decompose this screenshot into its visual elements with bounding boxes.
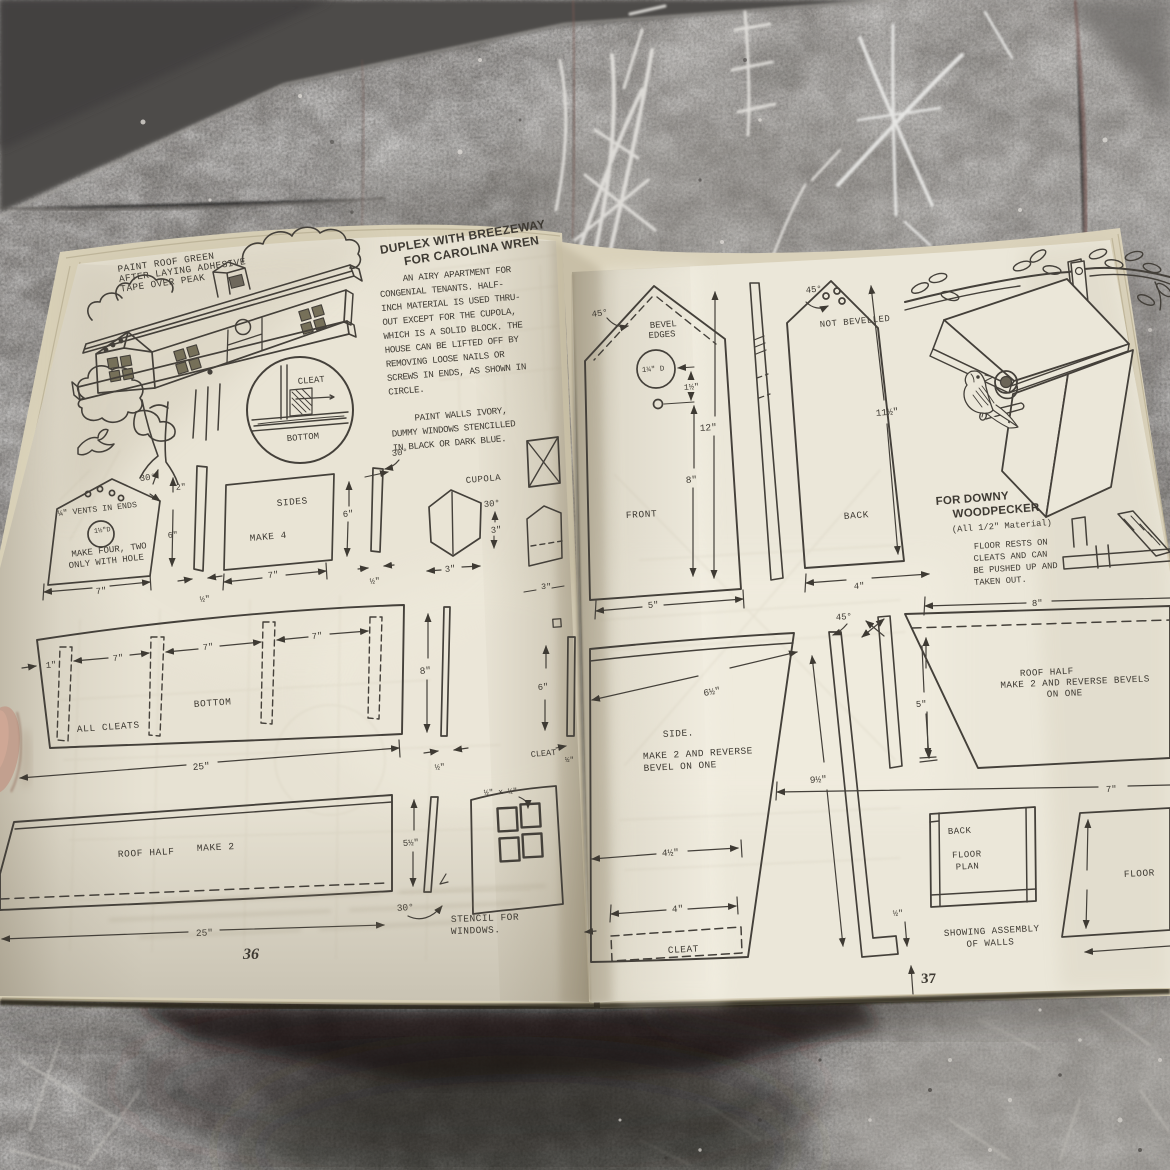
svg-text:WINDOWS.: WINDOWS.	[451, 924, 501, 937]
svg-text:½": ½"	[199, 594, 210, 605]
svg-text:EDGES: EDGES	[648, 329, 676, 341]
svg-text:6": 6"	[537, 682, 548, 693]
svg-text:5": 5"	[916, 699, 927, 710]
svg-text:12": 12"	[699, 422, 717, 434]
svg-text:6": 6"	[342, 509, 354, 520]
svg-text:5": 5"	[648, 600, 659, 611]
svg-text:4": 4"	[854, 581, 865, 592]
svg-text:5½": 5½"	[403, 838, 420, 849]
svg-text:7": 7"	[267, 570, 279, 581]
svg-text:1": 1"	[45, 660, 56, 671]
svg-text:MAKE 2: MAKE 2	[197, 841, 235, 854]
svg-text:4": 4"	[672, 903, 684, 915]
svg-text:½" x ½": ½" x ½"	[484, 787, 518, 798]
svg-text:BACK: BACK	[948, 826, 972, 837]
svg-text:7": 7"	[202, 642, 213, 653]
svg-text:7": 7"	[1106, 785, 1117, 795]
svg-text:4½": 4½"	[662, 847, 680, 859]
svg-text:½": ½"	[565, 756, 574, 765]
svg-text:8": 8"	[685, 474, 697, 486]
svg-text:25": 25"	[192, 761, 210, 773]
svg-text:½": ½"	[893, 908, 904, 919]
svg-text:8": 8"	[1032, 599, 1043, 609]
svg-text:FRONT: FRONT	[626, 508, 658, 521]
svg-text:7": 7"	[112, 653, 123, 664]
svg-text:37: 37	[921, 971, 937, 987]
svg-text:CLEAT: CLEAT	[668, 943, 700, 956]
svg-text:1½": 1½"	[684, 382, 700, 393]
svg-text:36: 36	[242, 946, 259, 963]
svg-text:6": 6"	[167, 530, 178, 541]
svg-text:7": 7"	[311, 631, 322, 642]
svg-text:3": 3"	[444, 564, 456, 575]
svg-text:FLOOR: FLOOR	[1124, 867, 1156, 880]
svg-text:½": ½"	[369, 576, 380, 587]
svg-text:SIDE.: SIDE.	[663, 727, 695, 740]
svg-text:30°: 30°	[391, 447, 408, 459]
svg-text:1½"D: 1½"D	[93, 525, 111, 536]
svg-text:2": 2"	[175, 482, 186, 493]
svg-text:BACK: BACK	[843, 509, 869, 522]
svg-text:8": 8"	[419, 665, 431, 677]
svg-text:45°: 45°	[836, 612, 853, 623]
svg-text:45°: 45°	[805, 284, 822, 296]
svg-text:3": 3"	[541, 582, 551, 592]
svg-text:ON ONE: ON ONE	[1047, 687, 1083, 700]
svg-text:11½": 11½"	[875, 406, 899, 419]
svg-text:1¼" D: 1¼" D	[642, 365, 666, 375]
svg-text:½": ½"	[434, 762, 445, 773]
svg-text:7": 7"	[95, 586, 107, 597]
svg-text:FLOOR: FLOOR	[952, 849, 982, 861]
svg-text:9½": 9½"	[809, 774, 827, 786]
svg-text:PLAN: PLAN	[956, 861, 980, 872]
svg-text:30°: 30°	[483, 499, 500, 510]
svg-text:3": 3"	[490, 525, 502, 536]
